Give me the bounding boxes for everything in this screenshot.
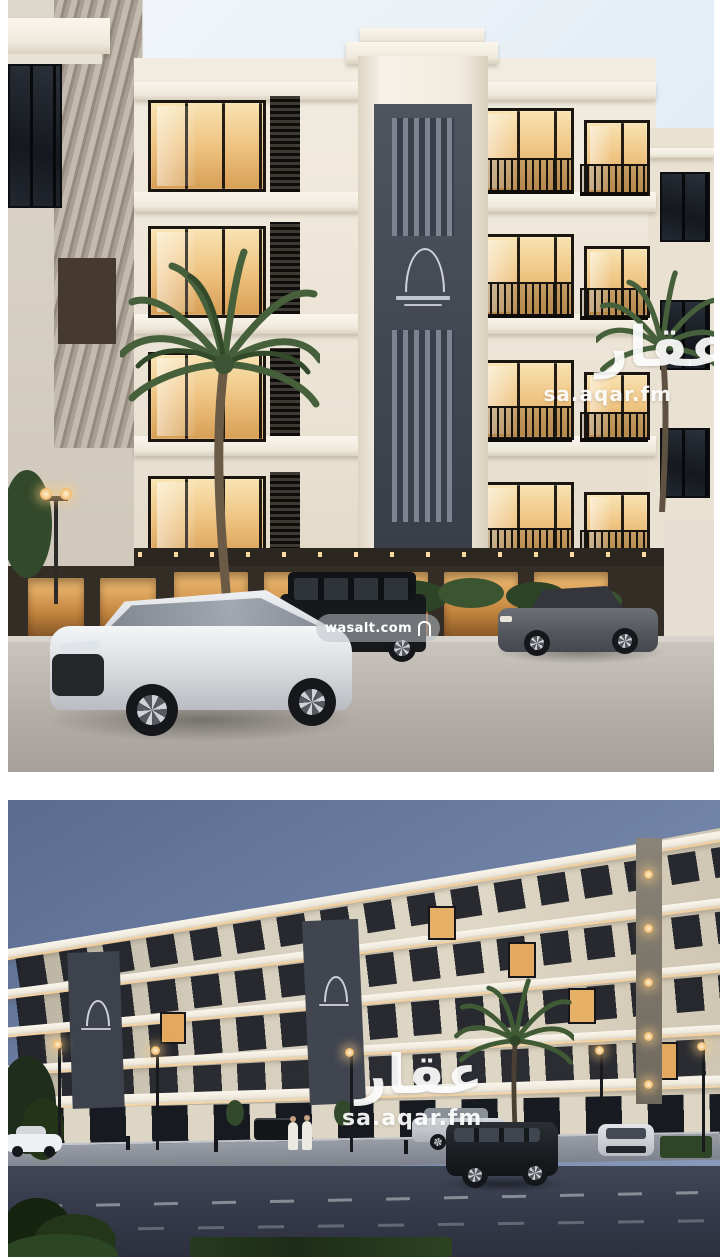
building-logo-text-line bbox=[319, 1004, 349, 1006]
louver-strip bbox=[270, 96, 300, 192]
building-logo-text-line bbox=[396, 296, 450, 300]
wall-sconce bbox=[644, 978, 653, 987]
potted-shrub bbox=[226, 1100, 244, 1126]
balcony-railing bbox=[476, 406, 572, 442]
adjacent-building-window bbox=[8, 64, 62, 208]
bollard bbox=[214, 1138, 218, 1152]
aqar-watermark-arabic: عقار bbox=[596, 320, 714, 376]
building-logo-text-line bbox=[404, 304, 442, 306]
streetlamp-head bbox=[595, 1046, 604, 1055]
white-sedan-wheel bbox=[12, 1146, 23, 1157]
dark-suv-wheel bbox=[462, 1162, 488, 1188]
white-suv-in-bay-grille bbox=[606, 1146, 646, 1153]
white-suv-in-bay-windshield bbox=[606, 1128, 646, 1139]
streetlamp-head bbox=[53, 1040, 62, 1049]
streetlamp-pole bbox=[702, 1048, 705, 1152]
bollard bbox=[404, 1140, 408, 1154]
pedestrian bbox=[302, 1121, 312, 1150]
balcony-railing bbox=[476, 282, 572, 318]
streetlamp-head bbox=[697, 1042, 706, 1051]
listing-photo-top[interactable]: wasalt.com عقار sa.aqar.fm bbox=[8, 0, 714, 772]
gray-sedan-wheel bbox=[612, 628, 638, 654]
white-suv-grille bbox=[52, 654, 104, 696]
right-building-cornice bbox=[648, 148, 714, 158]
black-suv-windows bbox=[294, 578, 410, 600]
feature-panel bbox=[67, 951, 124, 1109]
wall-sconce bbox=[644, 1080, 653, 1089]
tower-louver-bottom bbox=[392, 330, 454, 522]
aqar-watermark-domain: sa.aqar.fm bbox=[342, 1108, 482, 1130]
streetlamp-pole bbox=[350, 1054, 353, 1152]
lit-window bbox=[508, 942, 536, 978]
palm-tree bbox=[596, 190, 714, 570]
white-sedan-wheel bbox=[44, 1146, 55, 1157]
dark-suv-shadow bbox=[442, 1176, 566, 1192]
white-suv-wheel bbox=[288, 678, 336, 726]
aqar-watermark-arabic: عقار bbox=[356, 1048, 483, 1102]
wasalt-logo-icon bbox=[418, 621, 431, 636]
wasalt-watermark: wasalt.com bbox=[316, 614, 440, 642]
adjacent-building-cornice bbox=[8, 18, 110, 54]
gray-sedan-wheel bbox=[524, 630, 550, 656]
bollard bbox=[126, 1136, 130, 1150]
palm-tree bbox=[120, 214, 320, 614]
aqar-watermark-domain: sa.aqar.fm bbox=[544, 384, 672, 404]
balcony-railing bbox=[476, 158, 572, 194]
shrub bbox=[438, 578, 504, 608]
lit-window bbox=[428, 906, 456, 940]
adjacent-building-opening bbox=[58, 258, 116, 344]
streetlamp-pole bbox=[58, 1046, 61, 1148]
gray-sedan-headlight bbox=[500, 616, 512, 622]
streetlamp-head bbox=[151, 1046, 160, 1055]
pedestrian bbox=[288, 1122, 298, 1150]
apartment-window bbox=[148, 100, 266, 192]
median-grass bbox=[190, 1237, 452, 1257]
dark-suv-wheel bbox=[522, 1160, 548, 1186]
streetlamp-pole bbox=[156, 1052, 159, 1150]
wall-sconce bbox=[644, 924, 653, 933]
white-suv-wheel bbox=[126, 684, 178, 736]
streetlight-globe bbox=[60, 488, 72, 500]
listing-photo-bottom[interactable]: عقار sa.aqar.fm bbox=[8, 800, 720, 1257]
tower-louver-top bbox=[392, 118, 454, 236]
building-logo-text-line bbox=[81, 1028, 111, 1030]
wall-sconce bbox=[644, 870, 653, 879]
wasalt-watermark-label: wasalt.com bbox=[325, 621, 412, 636]
lit-window bbox=[160, 1012, 186, 1044]
streetlamp-head bbox=[345, 1048, 354, 1057]
streetlight-pole bbox=[54, 500, 58, 604]
streetlight-globe bbox=[40, 488, 52, 500]
wall-sconce bbox=[644, 1032, 653, 1041]
silver-suv-wheel bbox=[430, 1134, 446, 1150]
adjacent-building-cornice-step bbox=[8, 54, 102, 64]
